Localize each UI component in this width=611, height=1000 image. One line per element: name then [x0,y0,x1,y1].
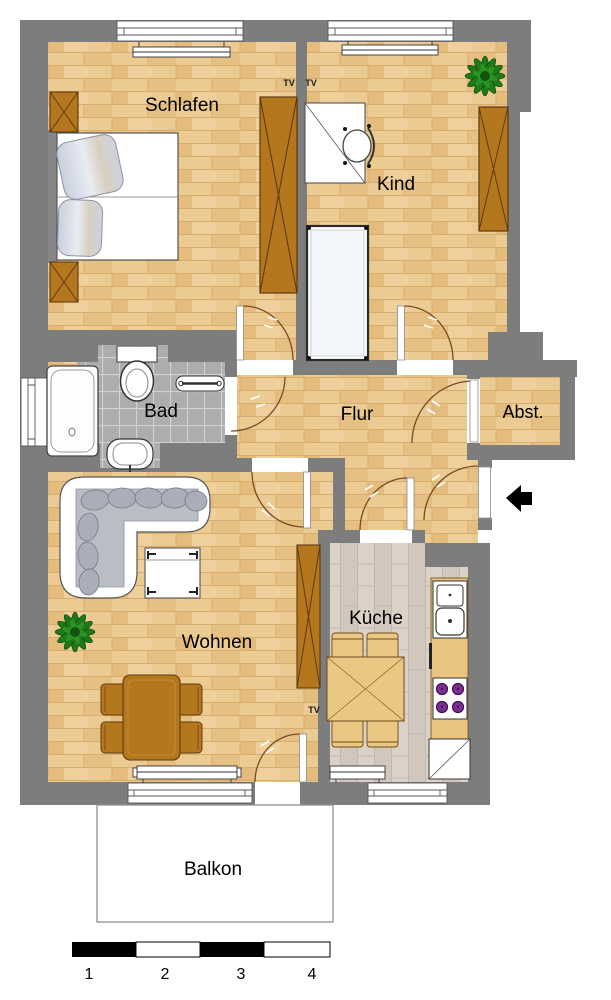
pillow [55,132,126,201]
scale-segment [200,942,264,957]
room-label-bad: Bad [144,401,178,422]
dining-table [123,675,180,760]
wardrobe [479,107,508,231]
washbasin [107,439,153,472]
tv-label: TV [305,78,317,88]
tv-cabinet [297,545,320,688]
room-label-wohnen: Wohnen [182,632,252,653]
room-label-schlafen: Schlafen [145,95,219,116]
fridge [429,739,470,779]
stove [433,678,467,719]
scale-number: 4 [308,966,317,983]
door-leaf [237,306,244,360]
scale-number: 2 [161,966,170,983]
door-leaf [479,467,491,518]
window-kueche [368,783,447,803]
tv-label: TV [308,705,320,715]
room-label-flur: Flur [341,404,374,425]
window-wohnen [128,783,252,803]
tall-wardrobe [260,97,297,293]
toilet [117,346,157,401]
door-leaf [304,472,311,528]
scale-number: 3 [237,966,246,983]
room-label-kind: Kind [377,174,415,195]
kitchen-table [327,657,404,721]
wardrobe [50,262,78,302]
scale-bar [72,942,330,957]
kitchen-sink [433,581,467,638]
bathtub [47,366,98,456]
single-bed [307,226,368,360]
wardrobe [50,92,78,132]
counter-handle [429,643,432,669]
bed-headboard [48,130,57,263]
towel-radiator [176,376,224,391]
scale-number: 1 [85,966,94,983]
pillow [57,199,103,257]
scale-segment [264,942,330,957]
floor-plan-page: Schlafen Kind Bad Flur Abst. Wohnen Küch… [0,0,611,1000]
window-bad [21,378,47,446]
scale-segment [72,942,136,957]
tv-label: TV [283,78,295,88]
door-leaf [398,306,405,360]
floor-plan-svg: Schlafen Kind Bad Flur Abst. Wohnen Küch… [0,0,611,1000]
door-leaf [300,734,307,782]
scale-segment [136,942,200,957]
entrance-arrow-icon [506,485,532,512]
room-label-abst: Abst. [502,402,543,422]
door-leaf [470,380,478,442]
window-kind [328,21,453,41]
coffee-table [145,548,200,598]
room-label-balkon: Balkon [184,859,242,880]
room-label-kueche: Küche [349,608,403,629]
door-leaf [407,478,414,530]
window-schlafen [117,21,243,41]
